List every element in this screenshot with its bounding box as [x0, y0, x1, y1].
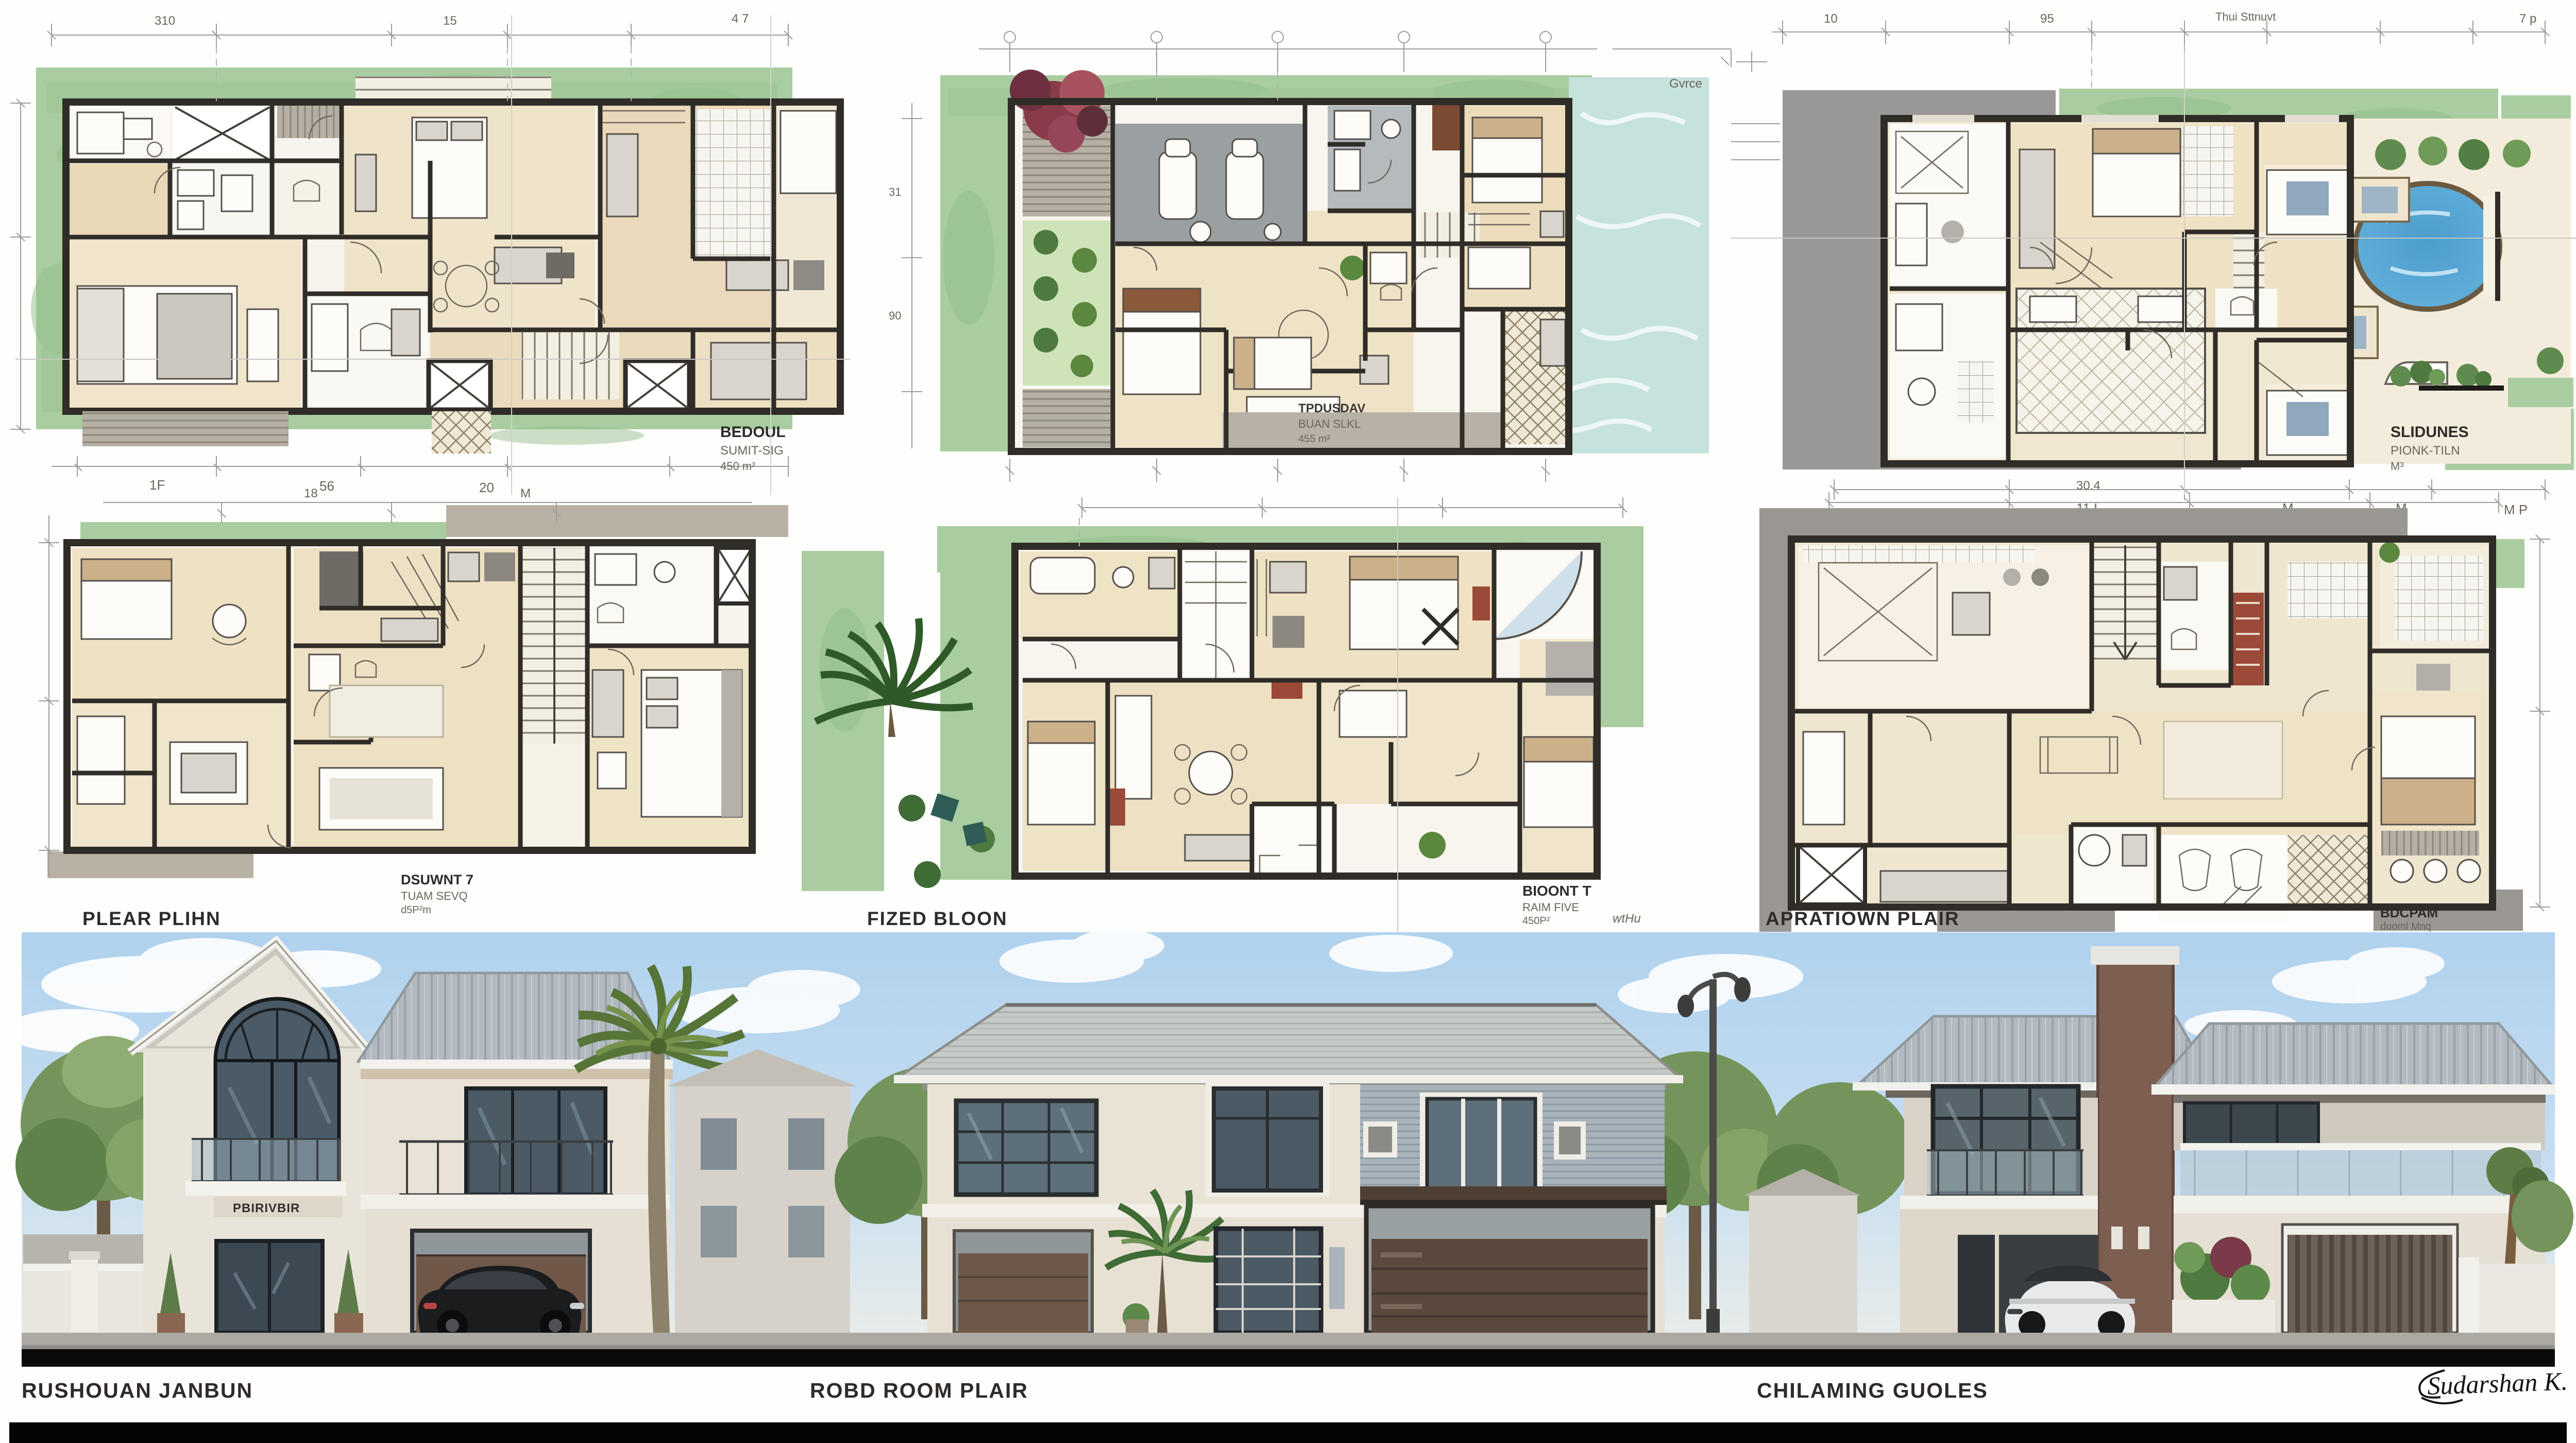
- svg-text:RAIM FIVE: RAIM FIVE: [1522, 901, 1579, 914]
- svg-text:1F: 1F: [149, 477, 165, 493]
- svg-text:20: 20: [479, 480, 494, 495]
- svg-text:PIONK-TILN: PIONK-TILN: [2391, 444, 2460, 458]
- svg-text:BDCPAM: BDCPAM: [2380, 905, 2438, 920]
- svg-text:15: 15: [443, 14, 457, 28]
- svg-text:M: M: [520, 486, 531, 500]
- svg-text:90: 90: [889, 309, 901, 322]
- svg-text:wtHu: wtHu: [1613, 912, 1641, 926]
- svg-text:95: 95: [2040, 12, 2054, 26]
- svg-text:4 7: 4 7: [732, 12, 749, 26]
- svg-text:BIOONT T: BIOONT T: [1522, 883, 1591, 899]
- svg-text:455 m²: 455 m²: [1298, 433, 1331, 445]
- svg-text:7 p: 7 p: [2519, 12, 2536, 26]
- svg-text:BEDOUL: BEDOUL: [720, 424, 786, 441]
- svg-text:10: 10: [1824, 12, 1838, 26]
- svg-text:Thui Sttnuvt: Thui Sttnuvt: [2215, 10, 2276, 23]
- svg-text:30.4: 30.4: [2076, 479, 2100, 493]
- svg-text:duoml Mnq: duoml Mnq: [2380, 921, 2431, 932]
- svg-text:TUAM SEVQ: TUAM SEVQ: [401, 890, 468, 902]
- svg-text:PBIRIVBIR: PBIRIVBIR: [233, 1201, 300, 1215]
- svg-text:SUMIT-SIG: SUMIT-SIG: [720, 444, 784, 458]
- svg-text:18: 18: [304, 486, 318, 500]
- svg-text:d5P²m: d5P²m: [401, 904, 431, 916]
- svg-text:APRATIOWN PLAIR: APRATIOWN PLAIR: [1766, 908, 1960, 929]
- svg-text:450P²: 450P²: [1522, 915, 1550, 927]
- svg-text:ROBD ROOM PLAIR: ROBD ROOM PLAIR: [810, 1379, 1028, 1402]
- svg-text:450 m²: 450 m²: [720, 460, 755, 473]
- svg-text:DSUWNT 7: DSUWNT 7: [401, 872, 473, 887]
- svg-text:31: 31: [889, 186, 901, 198]
- svg-text:M³: M³: [2391, 460, 2404, 473]
- svg-text:310: 310: [155, 14, 175, 28]
- svg-text:RUSHOUAN JANBUN: RUSHOUAN JANBUN: [22, 1379, 253, 1402]
- svg-text:Sudarshan K.: Sudarshan K.: [2427, 1367, 2568, 1400]
- svg-text:FIZED BLOON: FIZED BLOON: [867, 908, 1008, 929]
- svg-text:TPDUSDAV: TPDUSDAV: [1298, 401, 1365, 415]
- svg-text:M P: M P: [2504, 502, 2528, 517]
- svg-text:56: 56: [319, 478, 334, 494]
- svg-text:PLEAR PLIHN: PLEAR PLIHN: [82, 908, 221, 929]
- svg-text:Gvrce: Gvrce: [1669, 77, 1702, 91]
- svg-text:CHILAMING GUOLES: CHILAMING GUOLES: [1757, 1379, 1988, 1402]
- svg-text:BUAN SLKL: BUAN SLKL: [1298, 417, 1361, 430]
- svg-text:SLIDUNES: SLIDUNES: [2391, 424, 2469, 441]
